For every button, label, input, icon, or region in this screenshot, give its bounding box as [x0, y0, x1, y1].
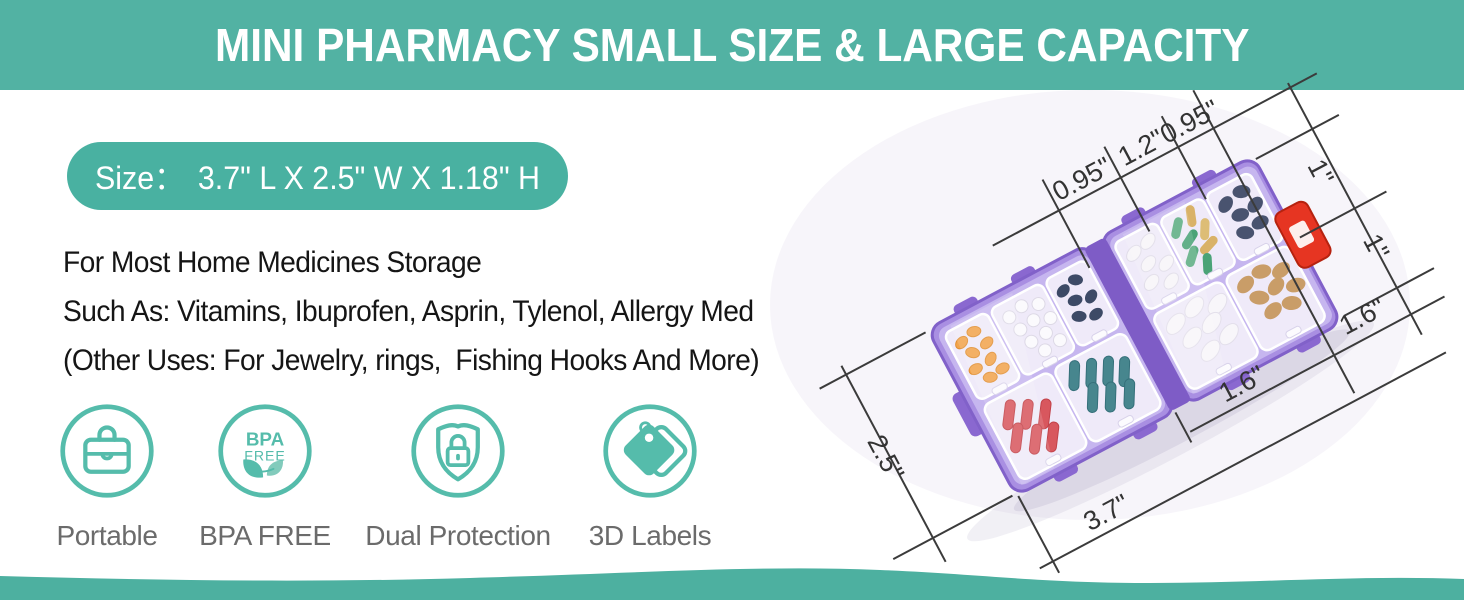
price-tag-icon: [601, 399, 699, 503]
desc-line-other-uses: (Other Uses: For Jewelry, rings, Fishing…: [63, 336, 759, 385]
feature-label-3d-labels: 3D Labels: [545, 520, 755, 552]
size-value: 3.7" L X 2.5" W X 1.18" H: [198, 160, 540, 197]
desc-line-storage: For Most Home Medicines Storage: [63, 238, 759, 287]
shield-lock-icon: [409, 399, 507, 503]
description: For Most Home Medicines Storage Such As:…: [63, 238, 803, 385]
bottom-wave: [0, 554, 1464, 600]
size-label: Size：: [95, 160, 185, 196]
page-root: MINI PHARMACY SMALL SIZE & LARGE CAPACIT…: [0, 0, 1464, 600]
desc-line-such-as: Such As: Vitamins, Ibuprofen, Asprin, Ty…: [63, 287, 759, 336]
briefcase-icon: [58, 399, 156, 503]
feature-label-dual-protection: Dual Protection: [353, 520, 563, 552]
feature-label-bpa-free: BPA FREE: [160, 520, 370, 552]
feature-dual-protection: Dual Protection: [353, 399, 563, 552]
feature-bpa-free: BPA FREE BPA FREE: [160, 399, 370, 552]
product-diagram: 0.95" 1.2" 0.95" 1" 1" 1.6" 1.6" 2.5" 3.…: [760, 60, 1464, 580]
feature-3d-labels: 3D Labels: [545, 399, 755, 552]
bpa-text: BPA: [246, 428, 285, 449]
bpa-free-leaf-icon: BPA FREE: [216, 399, 314, 503]
size-badge: Size：3.7" L X 2.5" W X 1.18" H: [67, 142, 568, 210]
